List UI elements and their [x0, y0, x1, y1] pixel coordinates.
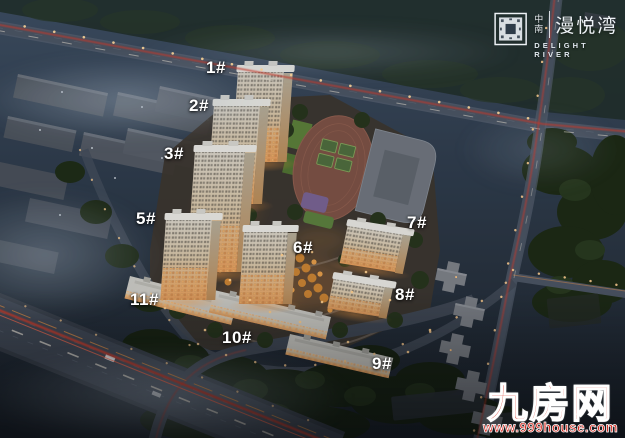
brand-company-name: 中南 [534, 15, 544, 34]
watermark-site-name: 九房网 [483, 384, 618, 424]
brand-seal-icon [494, 11, 527, 47]
brand-project-name: 漫悦湾 [555, 11, 618, 38]
logo-divider [549, 11, 550, 38]
brand-project-name-en: DELIGHT RIVER [534, 41, 625, 59]
brand-logo: 中南 漫悦湾 DELIGHT RIVER [494, 11, 625, 59]
watermark-site-url: www.999house.com [483, 421, 618, 435]
aerial-rendering: 1#2#3#5#6#7#8#9#10#11# 中南 漫悦湾 DELIGHT RI… [0, 0, 625, 438]
scene-render [0, 0, 625, 438]
watermark: 九房网 www.999house.com [483, 384, 618, 435]
